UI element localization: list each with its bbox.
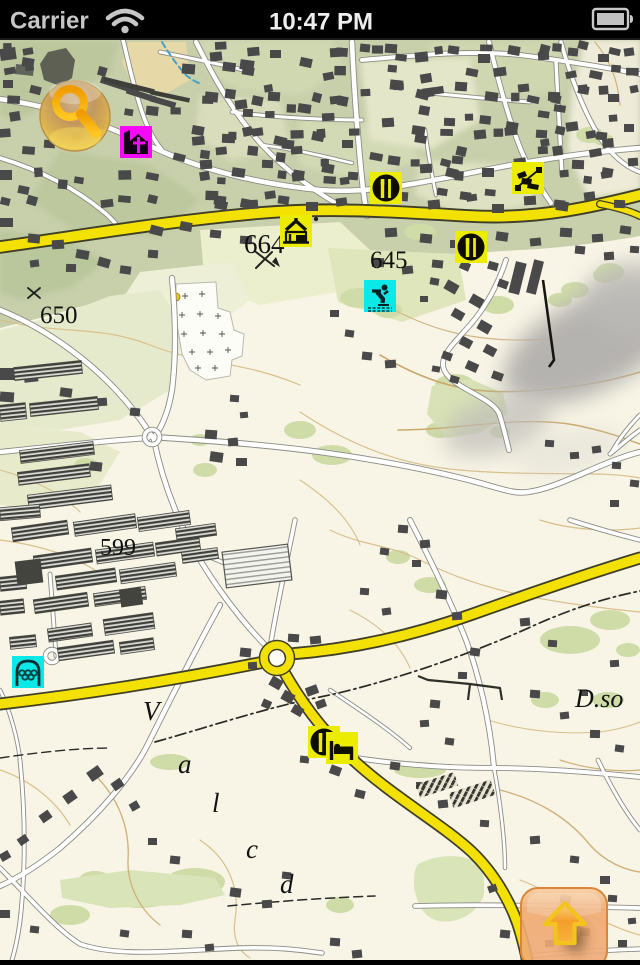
svg-text:d: d [280, 869, 294, 899]
svg-text:650: 650 [40, 302, 78, 329]
svg-text:10:47 PM: 10:47 PM [269, 9, 373, 36]
svg-text:l: l [212, 788, 220, 818]
svg-text:599: 599 [100, 535, 136, 561]
svg-text:Carrier: Carrier [10, 8, 89, 35]
svg-text:a: a [178, 749, 192, 779]
svg-text:c: c [246, 834, 258, 864]
svg-text:645: 645 [370, 247, 408, 274]
svg-text:664: 664 [244, 229, 285, 259]
svg-text:D.so: D.so [574, 684, 623, 713]
